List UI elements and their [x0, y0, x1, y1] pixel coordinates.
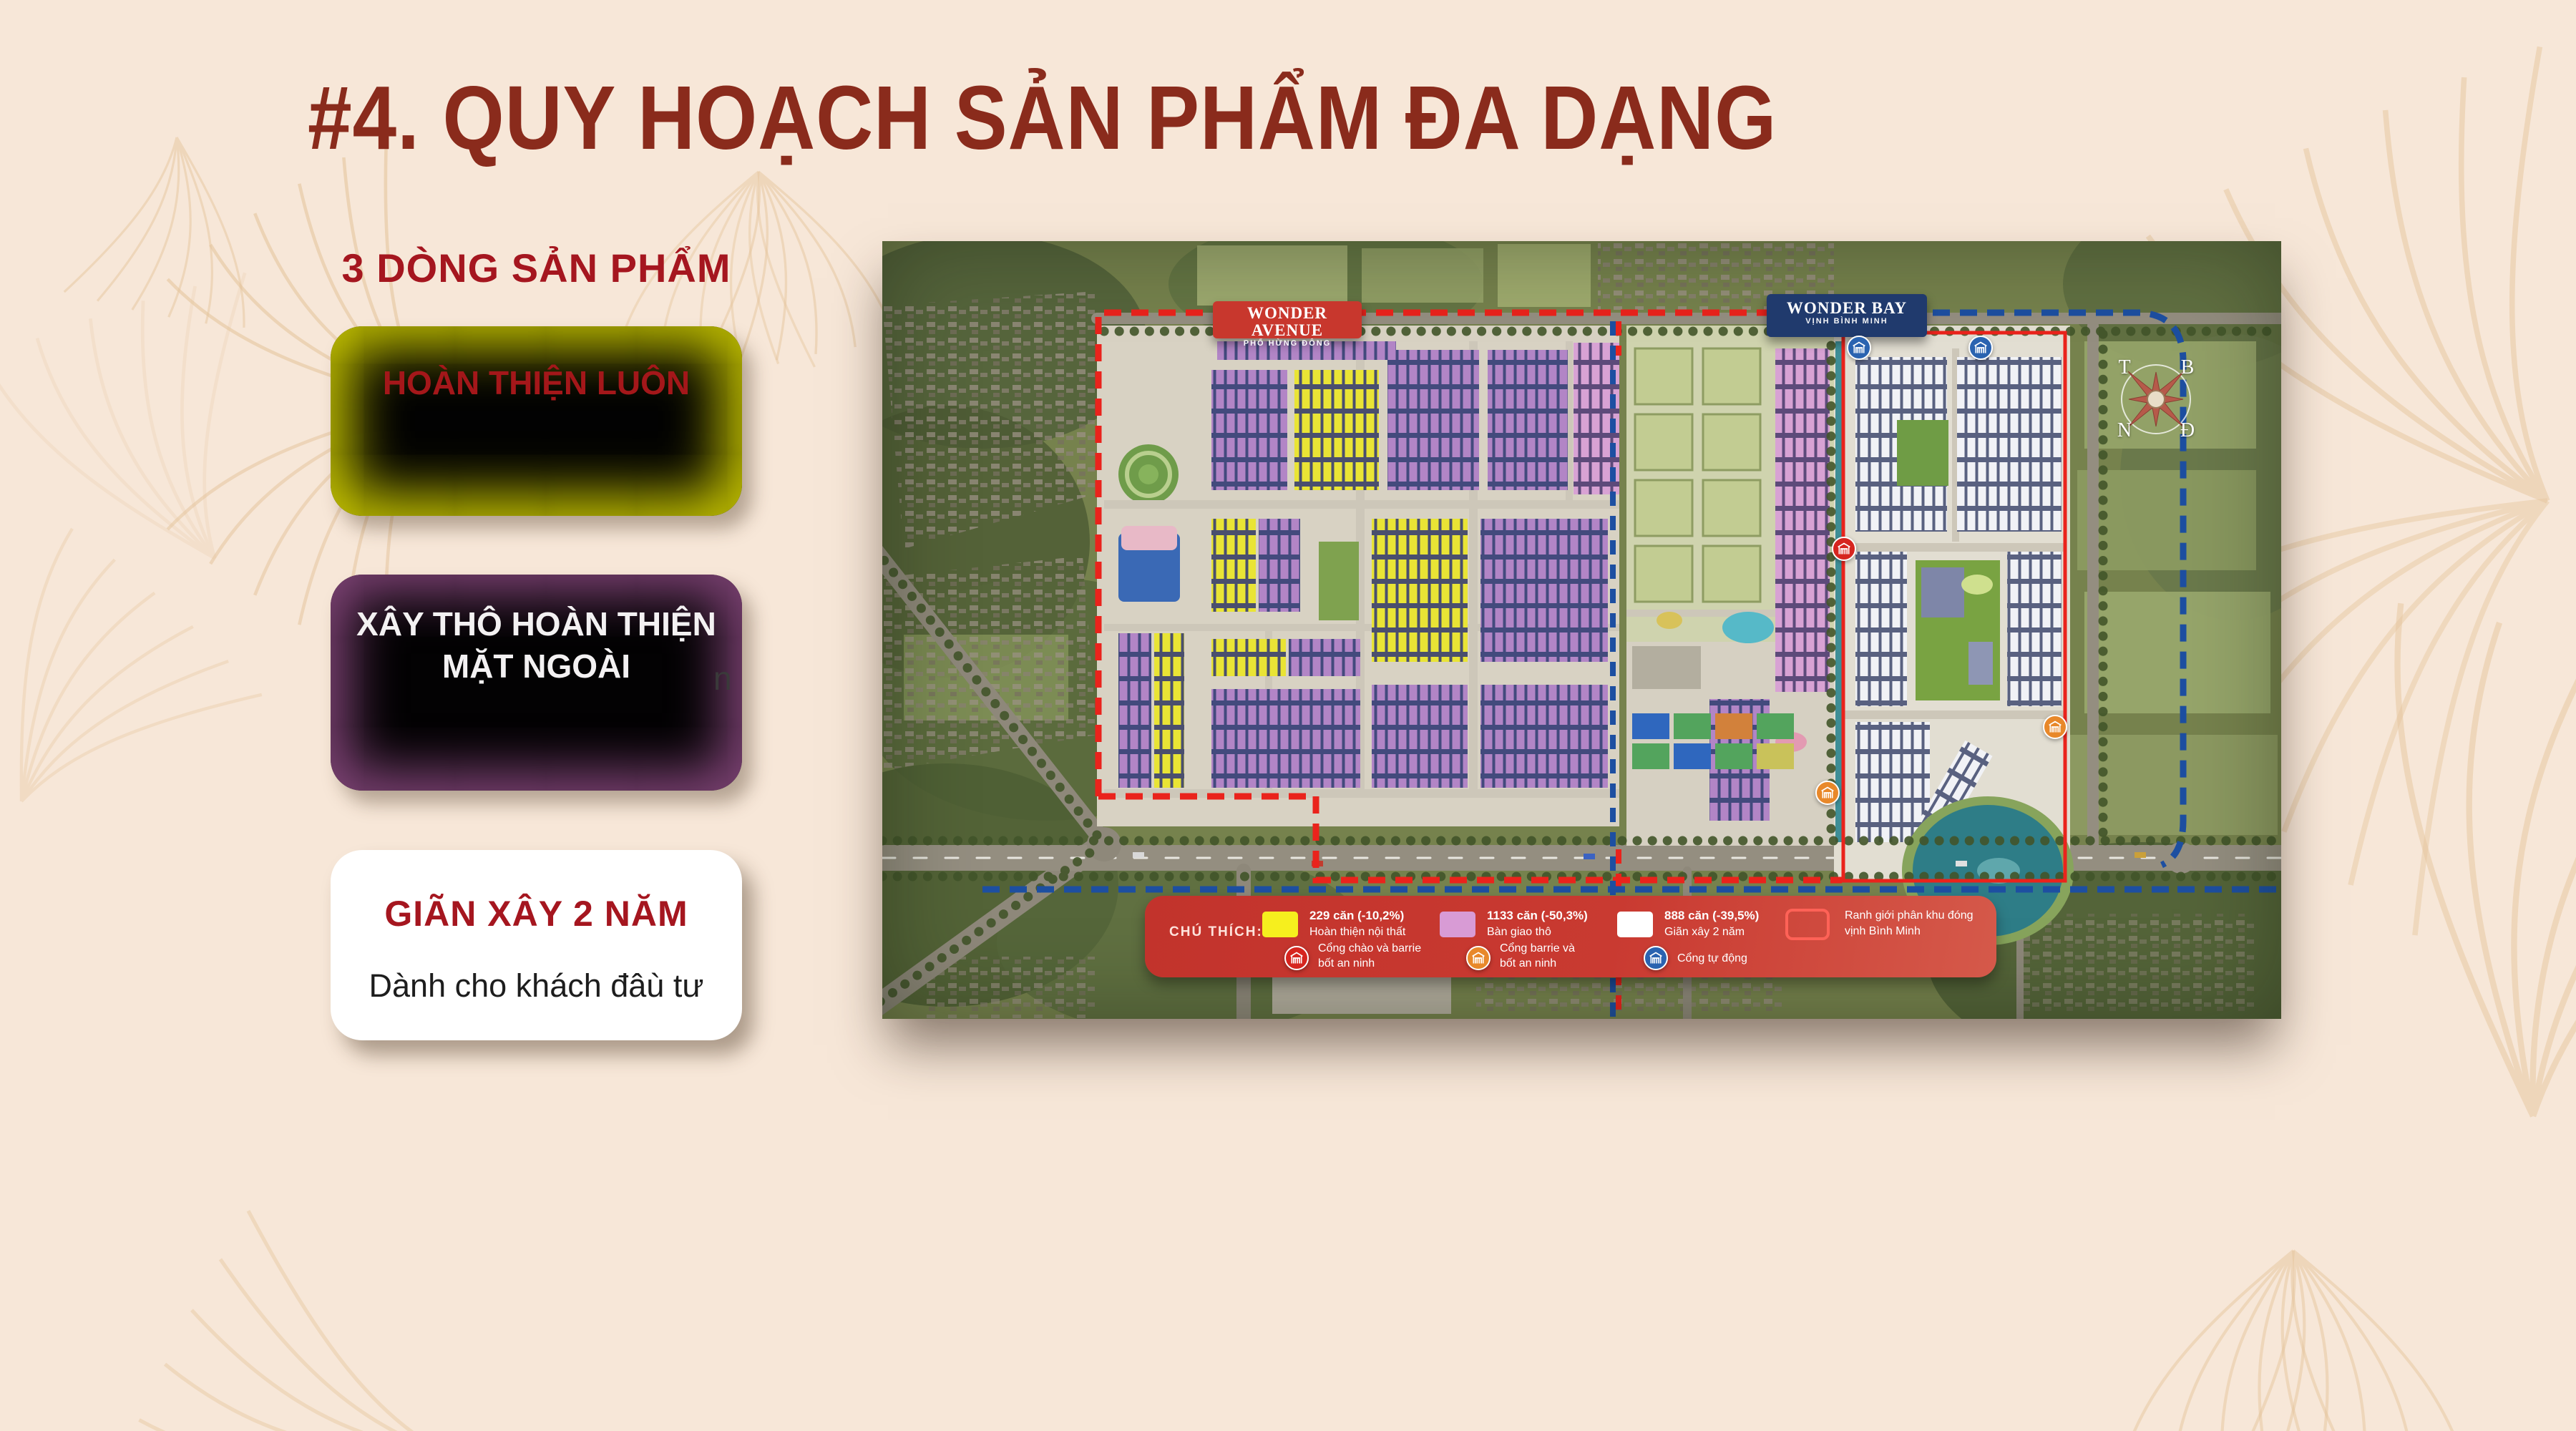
gate-line1: Cổng tự động: [1677, 952, 1747, 967]
legend-swatch-white: [1617, 912, 1653, 937]
gate-line2: bốt an ninh: [1500, 957, 1575, 972]
products-heading: 3 DÒNG SẢN PHẨM: [331, 245, 742, 291]
product-card-hoan-thien-luon: HOÀN THIỆN LUÔN: [331, 326, 742, 516]
product-card-gian-xay: GIÃN XÂY 2 NĂM Dành cho khách đâù tư: [331, 850, 742, 1040]
welcome-gate-icon: [1284, 946, 1309, 970]
compass-star: [2099, 342, 2213, 456]
gate-line1: Cổng chào và barrie: [1318, 942, 1421, 957]
legend-gate-item: Cổng barrie và bốt an ninh: [1500, 942, 1575, 972]
auto-gate-icon: [1644, 946, 1668, 970]
legend-line1: 1133 căn (-50,3%): [1487, 908, 1588, 924]
card-heading: GIÃN XÂY 2 NĂM: [331, 850, 742, 934]
map-legend: CHÚ THÍCH: 229 căn (-10,2%) Hoàn thiện n…: [1145, 896, 1996, 977]
legend-line1: Ranh giới phân khu đóng: [1845, 908, 1974, 924]
banner-subtitle: VỊNH BÌNH MINH: [1767, 317, 1927, 326]
compass-south: N: [2117, 419, 2132, 442]
legend-gate-item: Cổng chào và barrie bốt an ninh: [1318, 942, 1421, 972]
banner-subtitle: PHỐ HỪNG ĐÔNG: [1213, 339, 1362, 348]
legend-line2: Bàn giao thô: [1487, 924, 1588, 940]
legend-line2: Hoàn thiện nội thất: [1309, 924, 1405, 940]
banner-title: WONDER AVENUE: [1213, 305, 1362, 339]
auto-gate-icon: [1847, 336, 1871, 360]
banner-wonder-bay: WONDER BAY VỊNH BÌNH MINH: [1767, 294, 1927, 337]
legend-item: Ranh giới phân khu đóng vịnh Bình Minh: [1845, 908, 1974, 939]
barrier-gate-icon: [1466, 946, 1491, 970]
legend-line2: Giãn xây 2 năm: [1664, 924, 1759, 940]
compass-north: B: [2181, 356, 2195, 379]
slide: #4. QUY HOẠCH SẢN PHẨM ĐA DẠNG 3 DÒNG SẢ…: [0, 0, 2576, 1431]
gate-line1: Cổng barrie và: [1500, 942, 1575, 957]
legend-item: 1133 căn (-50,3%) Bàn giao thô: [1487, 908, 1588, 940]
legend-line1: 229 căn (-10,2%): [1309, 908, 1405, 924]
master-plan-map: WONDER AVENUE PHỐ HỪNG ĐÔNG WONDER BAY V…: [882, 241, 2281, 1019]
welcome-gate-icon: [1832, 537, 1856, 561]
auto-gate-icon: [1968, 336, 1993, 360]
legend-swatch-yellow: [1262, 912, 1298, 937]
compass-east: Đ: [2180, 419, 2195, 442]
legend-label: CHÚ THÍCH:: [1169, 924, 1263, 940]
compass-rose: B Đ N T: [2099, 342, 2213, 456]
compass-west: T: [2118, 356, 2130, 379]
legend-item: 229 căn (-10,2%) Hoàn thiện nội thất: [1309, 908, 1405, 940]
banner-wonder-avenue: WONDER AVENUE PHỐ HỪNG ĐÔNG: [1213, 301, 1362, 338]
product-card-xay-tho: XÂY THÔ HOÀN THIỆN MẶT NGOÀI n: [331, 575, 742, 791]
gate-line2: bốt an ninh: [1318, 957, 1421, 972]
legend-gate-item: Cổng tự động: [1677, 952, 1747, 967]
legend-line1: 888 căn (-39,5%): [1664, 908, 1759, 924]
card-heading: HOÀN THIỆN LUÔN: [331, 326, 742, 402]
legend-swatch-pink: [1440, 912, 1475, 937]
barrier-gate-icon: [1815, 781, 1840, 805]
legend-line2: vịnh Bình Minh: [1845, 924, 1974, 939]
barrier-gate-icon: [2043, 715, 2067, 739]
legend-swatch-boundary: [1785, 909, 1830, 940]
card-heading: XÂY THÔ HOÀN THIỆN MẶT NGOÀI: [331, 575, 742, 688]
banner-title: WONDER BAY: [1767, 300, 1927, 317]
partially-hidden-text: n: [713, 659, 732, 698]
page-title: #4. QUY HOẠCH SẢN PHẨM ĐA DẠNG: [308, 66, 1777, 170]
legend-item: 888 căn (-39,5%) Giãn xây 2 năm: [1664, 908, 1759, 940]
card-body: Dành cho khách đâù tư: [331, 967, 742, 1005]
